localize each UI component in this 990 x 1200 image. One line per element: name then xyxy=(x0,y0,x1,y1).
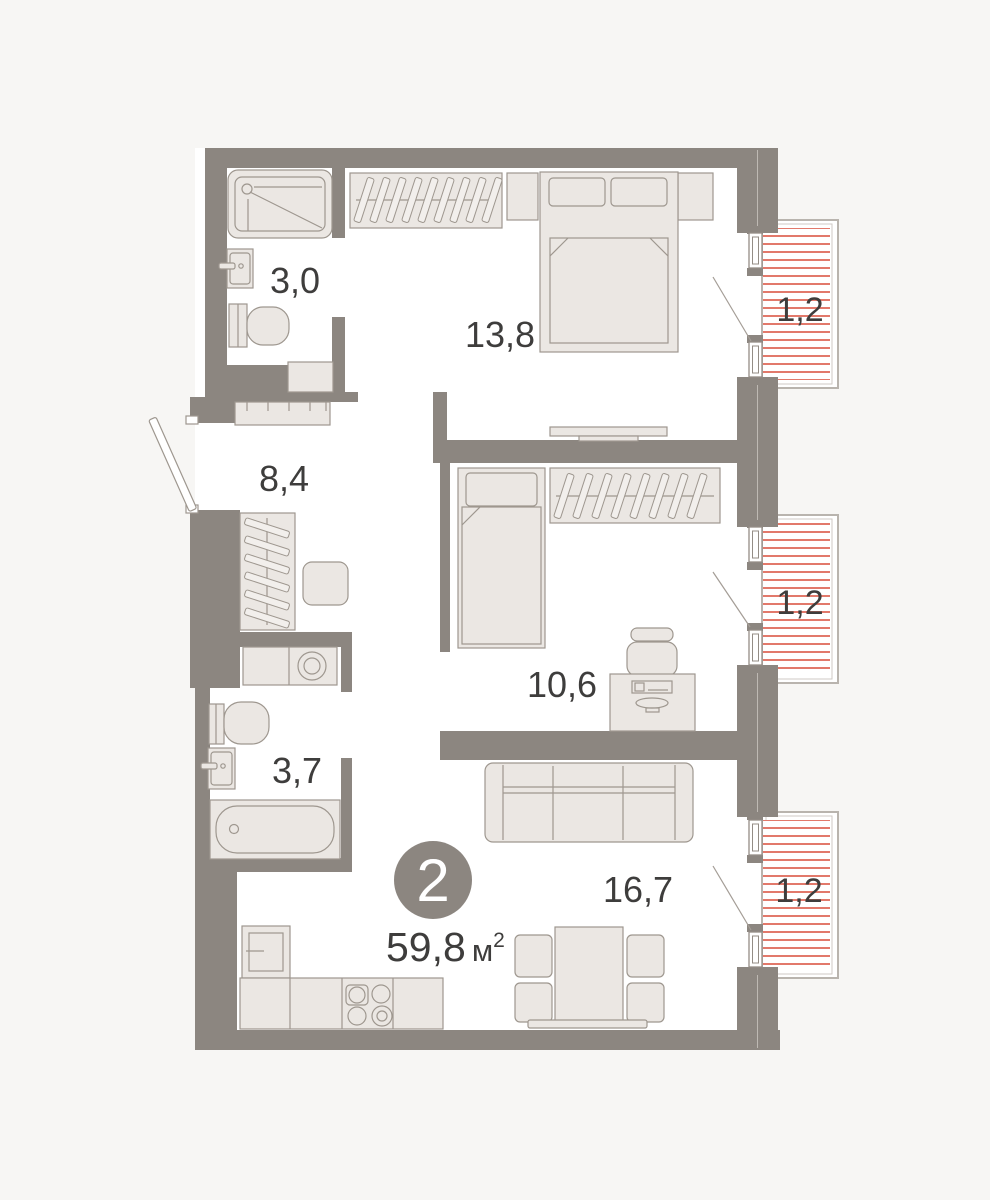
window-icon xyxy=(749,527,762,562)
entry-door xyxy=(149,416,198,513)
fridge xyxy=(242,926,290,978)
desk xyxy=(610,674,695,731)
room-label-bedroom-second: 10,6 xyxy=(527,664,597,705)
bathroom-cabinet xyxy=(288,362,333,392)
room-label-shower: 3,0 xyxy=(270,260,320,301)
wall-shower-bottom xyxy=(205,365,288,402)
dining-chair xyxy=(627,983,664,1022)
wall-left-kitchen xyxy=(195,865,237,1032)
balcony-label-middle: 1,2 xyxy=(776,584,823,622)
room-label-living: 16,7 xyxy=(603,869,673,910)
pillow xyxy=(549,178,605,206)
dining-table xyxy=(555,927,623,1025)
wall-left-hall xyxy=(190,510,240,688)
wall-room2-bottom xyxy=(440,731,737,760)
coat-rack xyxy=(235,402,330,425)
wall-shower-band xyxy=(288,392,358,402)
desk-chair xyxy=(627,628,677,676)
floor-plan: 3,0 13,8 8,4 10,6 3,7 16,7 1,2 1,2 1,2 2… xyxy=(0,0,990,1200)
unit-number: 2 xyxy=(416,847,449,914)
sofa xyxy=(485,763,693,842)
unit-number-badge: 2 xyxy=(394,841,472,919)
window-icon xyxy=(749,820,762,855)
wall-bathroom-right-upper xyxy=(341,632,352,692)
window-icon xyxy=(749,932,762,967)
washing-machine xyxy=(243,647,337,685)
wardrobe-bedroom-main xyxy=(350,173,502,228)
single-bed xyxy=(458,468,545,648)
wardrobe-bedroom-second xyxy=(550,468,720,523)
balcony-label-bottom: 1,2 xyxy=(775,872,822,910)
window-icon xyxy=(749,630,762,665)
room-label-hallway: 8,4 xyxy=(259,458,309,499)
dining-chair xyxy=(515,935,552,977)
wall-shower-right-lower xyxy=(332,317,345,397)
wall-left-upper xyxy=(205,148,227,365)
wall-bottom xyxy=(195,1030,780,1050)
pouf xyxy=(303,562,348,605)
wall-top xyxy=(205,148,778,168)
balcony-label-top: 1,2 xyxy=(776,291,823,329)
wall-shower-right xyxy=(332,167,345,238)
wall-room2-left xyxy=(440,463,450,652)
toilet-icon xyxy=(209,702,269,744)
wall-bathroom-bottom xyxy=(198,858,352,872)
room-label-bedroom-main: 13,8 xyxy=(465,314,535,355)
room-label-bathroom: 3,7 xyxy=(272,750,322,791)
nightstand xyxy=(678,173,713,220)
wall-bathroom-right-lower xyxy=(341,758,352,872)
shower-tray xyxy=(228,170,332,238)
wardrobe-hallway xyxy=(240,513,295,630)
dining-chair xyxy=(627,935,664,977)
nightstand xyxy=(507,173,538,220)
wall-mid-band xyxy=(433,440,737,463)
dining-table-set xyxy=(515,927,664,1028)
window-icon xyxy=(749,233,762,268)
toilet-icon xyxy=(229,304,289,347)
dining-chair xyxy=(515,983,552,1022)
window-icon xyxy=(749,342,762,377)
floor-plan-page: 3,0 13,8 8,4 10,6 3,7 16,7 1,2 1,2 1,2 2… xyxy=(0,0,990,1200)
bathtub xyxy=(210,800,340,859)
pillow xyxy=(611,178,667,206)
wall-bathroom-top xyxy=(240,632,350,647)
pillow xyxy=(466,473,537,506)
kitchen-counter xyxy=(240,978,443,1029)
